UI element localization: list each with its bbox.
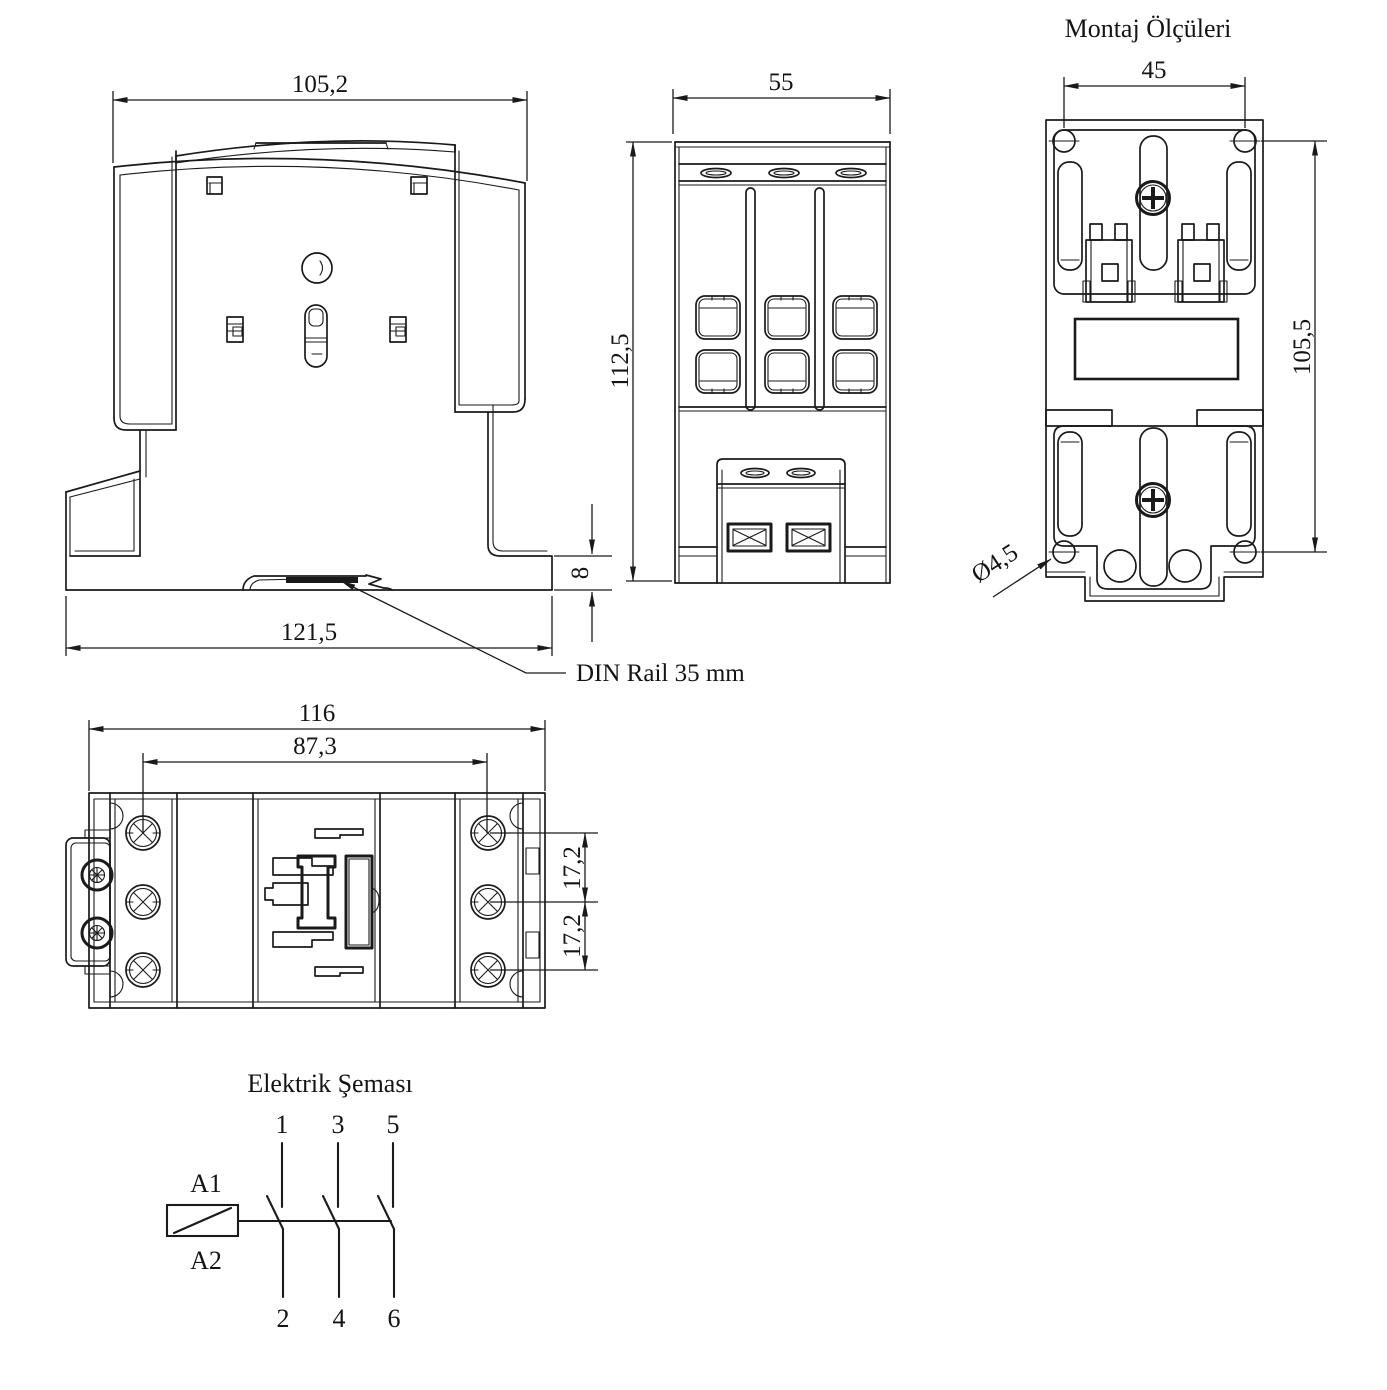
dim-top-view-width-label: 116 [299, 700, 336, 727]
mounting-label-plate [1075, 319, 1238, 379]
dim-front-height-label: 112,5 [607, 333, 634, 388]
mounting-rail-clip-right [1175, 224, 1227, 302]
dim-screw-span-label: 87,3 [293, 733, 337, 760]
top-terminal-screws-left [126, 816, 160, 987]
contact-label-5: 5 [387, 1110, 400, 1139]
front-view-width-dimension: 55 [673, 69, 890, 134]
dim-pitch-top-label: 17,2 [559, 846, 586, 890]
mounting-screw-bottom [1137, 484, 1170, 517]
drawing-canvas: 105,2 [0, 0, 1387, 1390]
circuit-diagram: Elektrik Şeması 1 3 5 A1 A2 2 4 6 [167, 1069, 413, 1333]
front-view: 55 112,5 [607, 69, 890, 583]
mounting-hole-bottom-right [1230, 541, 1260, 563]
coil-terminal-a1: A1 [190, 1169, 222, 1198]
side-din-release-clip [66, 430, 146, 590]
front-pole-divider-right [815, 188, 824, 410]
contact-label-6: 6 [388, 1304, 401, 1333]
top-view: 116 87,3 [66, 700, 598, 1008]
side-left-wing [114, 151, 176, 430]
front-coil-terminal-slot-right [787, 524, 830, 551]
dim-front-width-label: 55 [769, 69, 794, 96]
side-view-top-width-dimension: 105,2 [113, 71, 527, 181]
side-view-base-width-dimension: 121,5 [66, 596, 552, 656]
side-keyhole-slot [305, 305, 327, 367]
contact-label-3: 3 [332, 1110, 345, 1139]
contact-label-4: 4 [333, 1304, 346, 1333]
coil-terminal-a2: A2 [190, 1246, 222, 1275]
top-view-screw-span-dimension: 87,3 [143, 733, 487, 833]
mounting-hole-diameter-callout: Ø4,5 [967, 539, 1051, 597]
din-rail-slot [243, 575, 392, 590]
side-view: 105,2 [66, 71, 745, 687]
side-clip-hole-right [390, 317, 406, 342]
din-rail-callout: DIN Rail 35 mm [341, 581, 745, 687]
front-pole-divider-left [746, 188, 755, 410]
contact-label-1: 1 [276, 1110, 289, 1139]
mounting-hole-span-h-dimension: 45 [1064, 57, 1245, 128]
side-mount-hole-square-right [411, 177, 427, 194]
dim-hole-diameter-label: Ø4,5 [967, 539, 1023, 589]
front-terminal-openings [696, 296, 877, 393]
top-view-pitch-dimensions: 17,2 17,2 [490, 833, 598, 970]
side-clip-hole-left [227, 317, 243, 342]
technical-drawing-page: 105,2 [0, 0, 1387, 1390]
coil-symbol [167, 1205, 238, 1236]
side-view-base-height-dimension: 8 [554, 504, 612, 642]
dim-base-width-label: 121,5 [281, 619, 337, 646]
top-center-mechanism [265, 829, 379, 976]
mounting-screw-top [1137, 182, 1170, 215]
mounting-hole-bottom-left [1049, 541, 1079, 563]
circuit-title: Elektrik Şeması [247, 1069, 412, 1098]
dim-hole-span-h-label: 45 [1142, 57, 1167, 84]
mounting-hole-span-v-dimension: 105,5 [1261, 141, 1327, 552]
mounting-rail-clip-left [1083, 224, 1135, 302]
mounting-view-title: Montaj Ölçüleri [1065, 14, 1232, 43]
dim-pitch-bottom-label: 17,2 [559, 914, 586, 958]
side-mount-hole-square-left [207, 177, 222, 194]
din-rail-label: DIN Rail 35 mm [576, 660, 745, 687]
front-view-height-dimension: 112,5 [607, 142, 672, 581]
dim-hole-span-v-label: 105,5 [1289, 319, 1316, 375]
mounting-view: Montaj Ölçüleri 45 [967, 14, 1327, 601]
side-center-hole [302, 253, 332, 283]
front-top-vent-slots [701, 169, 866, 178]
dim-top-width-label: 105,2 [292, 71, 348, 98]
contact-label-2: 2 [277, 1304, 290, 1333]
front-coil-terminal-block [717, 459, 845, 583]
front-coil-terminal-slot-left [728, 524, 771, 551]
dim-base-height-label: 8 [567, 567, 594, 580]
